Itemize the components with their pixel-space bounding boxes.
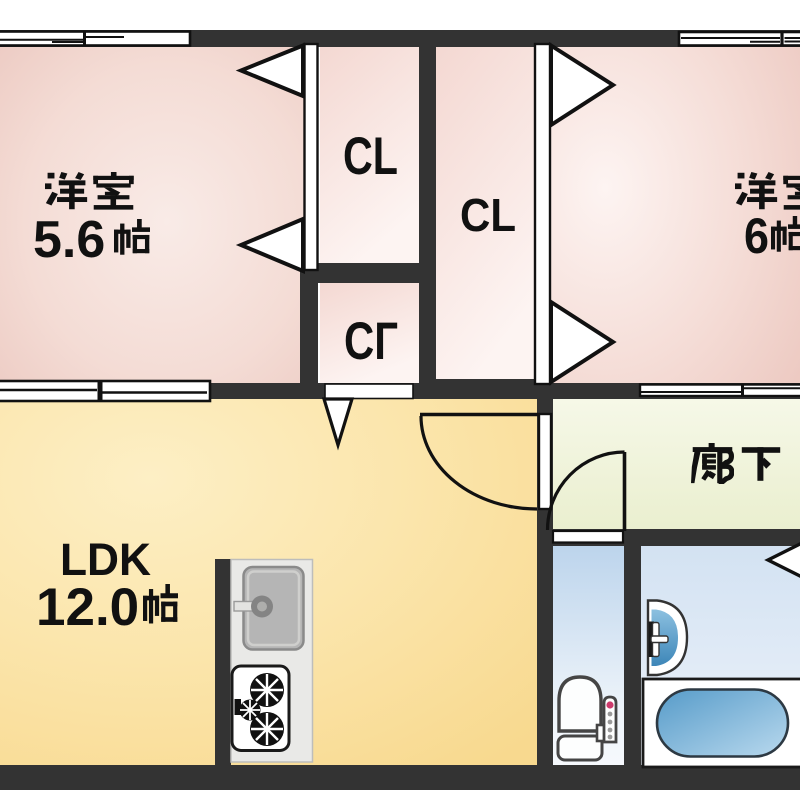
svg-text:5.6: 5.6 <box>33 211 105 269</box>
svg-text:6: 6 <box>744 208 769 264</box>
svg-text:CL: CL <box>343 127 398 186</box>
svg-text:CГ: CГ <box>344 312 398 371</box>
svg-text:12.0: 12.0 <box>36 578 139 637</box>
svg-text:CL: CL <box>460 189 516 241</box>
